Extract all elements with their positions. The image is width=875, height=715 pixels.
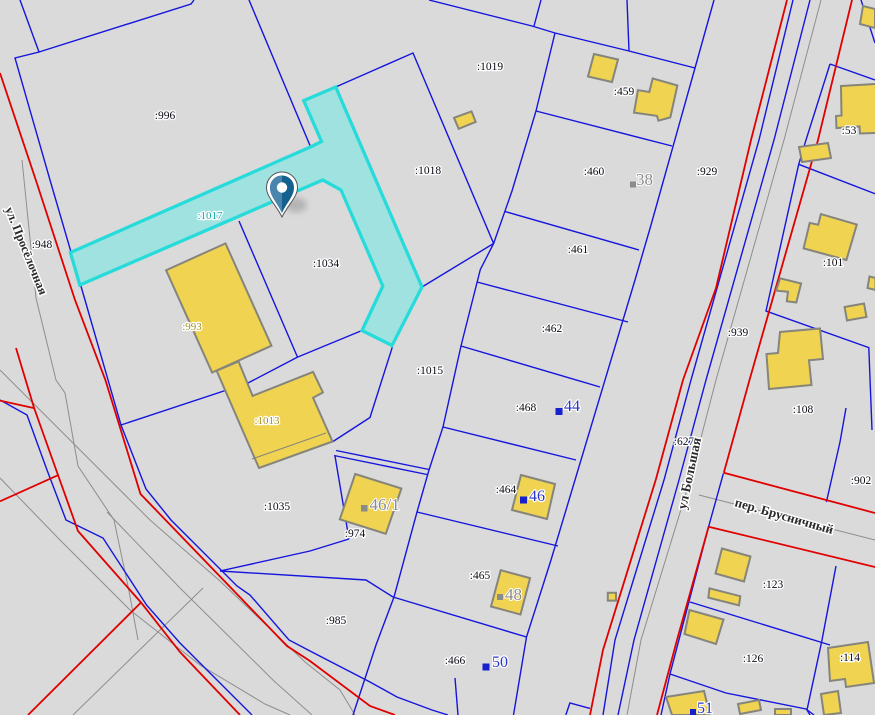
svg-text::466: :466 [445, 655, 466, 667]
svg-text::53: :53 [842, 125, 857, 137]
svg-text::939: :939 [728, 327, 749, 339]
svg-text::468: :468 [516, 402, 537, 414]
svg-text::985: :985 [326, 615, 347, 627]
svg-text::460: :460 [584, 166, 605, 178]
svg-text:46/1: 46/1 [370, 495, 400, 514]
svg-text::126: :126 [743, 653, 764, 665]
svg-text::993: :993 [182, 321, 202, 333]
svg-text::1035: :1035 [264, 501, 290, 513]
svg-text::902: :902 [851, 475, 872, 487]
svg-text::465: :465 [470, 570, 491, 582]
svg-text:50: 50 [492, 654, 508, 671]
svg-text::1015: :1015 [417, 365, 443, 377]
svg-text::462: :462 [542, 323, 563, 335]
svg-text::101: :101 [823, 257, 844, 269]
svg-text::948: :948 [32, 239, 53, 251]
svg-text::1019: :1019 [477, 61, 503, 73]
svg-text::929: :929 [697, 166, 718, 178]
svg-text:46: 46 [529, 488, 545, 505]
svg-text:44: 44 [564, 398, 580, 415]
svg-text::1017: :1017 [197, 210, 223, 222]
svg-text:48: 48 [505, 585, 522, 604]
svg-text::1013: :1013 [254, 415, 280, 427]
svg-text::464: :464 [496, 484, 517, 496]
svg-text::974: :974 [345, 528, 366, 540]
svg-text::1034: :1034 [313, 258, 339, 270]
svg-text::461: :461 [568, 244, 589, 256]
svg-text:51: 51 [697, 700, 713, 715]
svg-text::108: :108 [793, 404, 814, 416]
svg-text::459: :459 [614, 86, 635, 98]
svg-text::1018: :1018 [415, 165, 441, 177]
svg-text::123: :123 [763, 579, 784, 591]
svg-text::996: :996 [155, 110, 176, 122]
svg-text:38: 38 [636, 170, 653, 189]
svg-text::114: :114 [840, 652, 860, 664]
